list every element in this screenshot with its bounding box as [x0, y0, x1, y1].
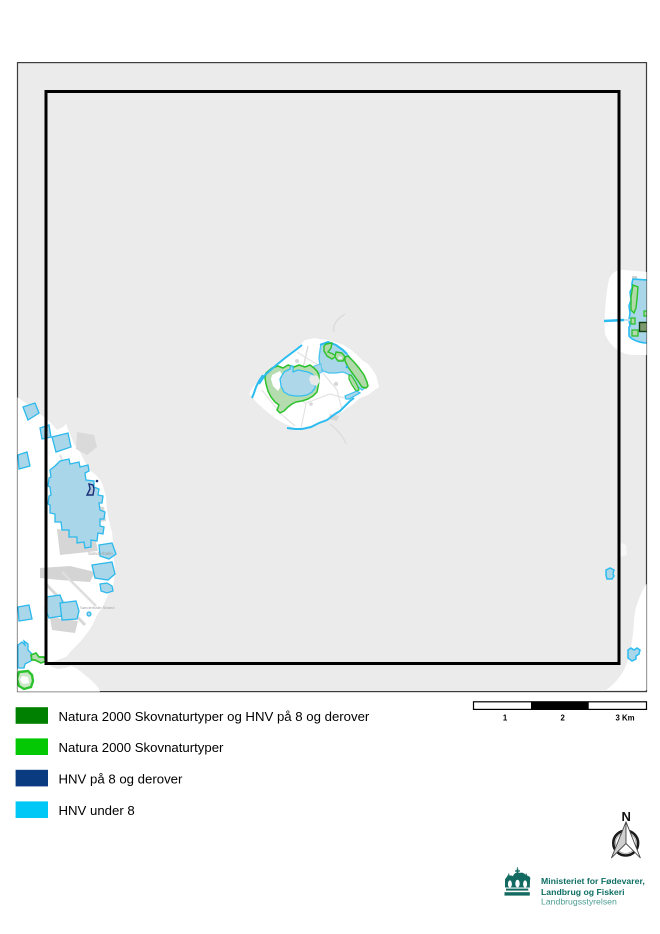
svg-text:Landbrugsstyrelsen: Landbrugsstyrelsen [541, 897, 617, 907]
svg-text:Sønderballe: Sønderballe [88, 551, 113, 556]
svg-text:1: 1 [503, 714, 508, 723]
svg-text:Landbrug og Fiskeri: Landbrug og Fiskeri [541, 887, 625, 897]
svg-text:HNV under 8: HNV under 8 [59, 803, 135, 818]
svg-text:3 Km: 3 Km [615, 714, 634, 723]
svg-text:2: 2 [561, 714, 566, 723]
svg-text:Ministeriet for Fødevarer,: Ministeriet for Fødevarer, [541, 876, 645, 886]
svg-text:Natura 2000 Skovnaturtyper: Natura 2000 Skovnaturtyper [59, 740, 225, 755]
svg-text:Sønderballe Strand: Sønderballe Strand [80, 605, 114, 610]
svg-text:Natura 2000 Skovnaturtyper og: Natura 2000 Skovnaturtyper og HNV på 8 o… [59, 709, 370, 724]
svg-text:HNV på 8 og derover: HNV på 8 og derover [59, 772, 183, 787]
